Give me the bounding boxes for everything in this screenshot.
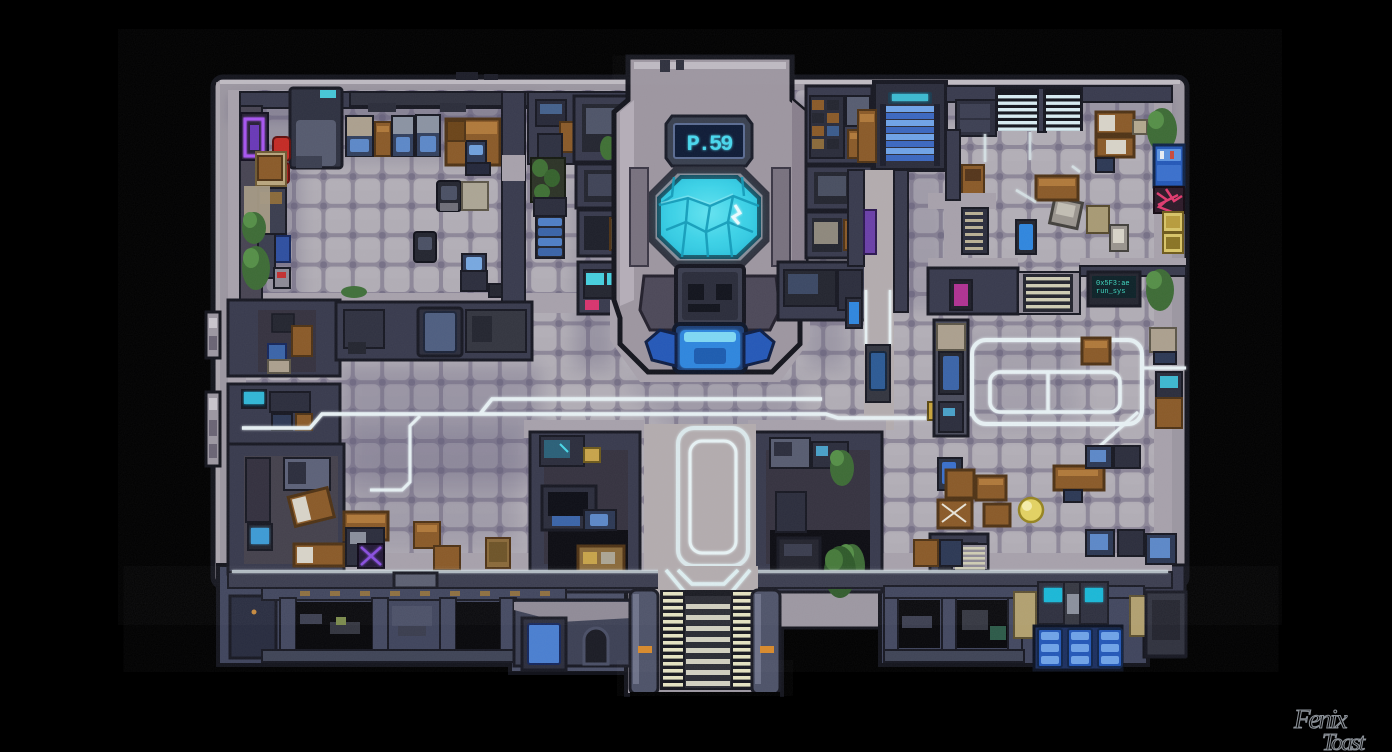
svg-text:Toast: Toast (1322, 730, 1366, 752)
